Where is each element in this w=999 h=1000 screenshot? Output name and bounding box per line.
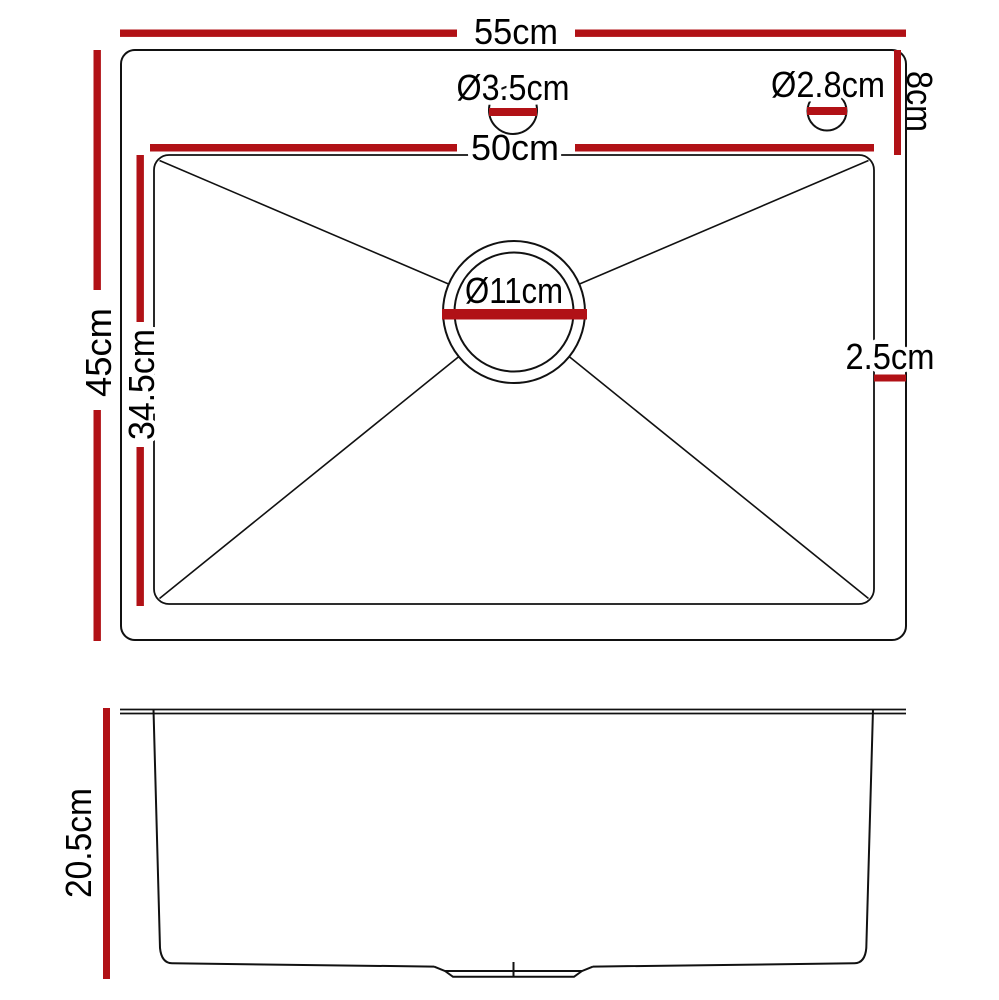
svg-text:2.5cm: 2.5cm [846,336,935,377]
svg-text:55cm: 55cm [474,11,558,52]
svg-text:Ø2.8cm: Ø2.8cm [771,64,885,105]
svg-text:20.5cm: 20.5cm [58,788,99,898]
svg-text:45cm: 45cm [78,308,119,397]
svg-text:8cm: 8cm [899,71,940,132]
svg-text:34.5cm: 34.5cm [121,329,162,440]
svg-text:Ø11cm: Ø11cm [465,270,563,311]
svg-text:Ø3.5cm: Ø3.5cm [457,67,570,108]
